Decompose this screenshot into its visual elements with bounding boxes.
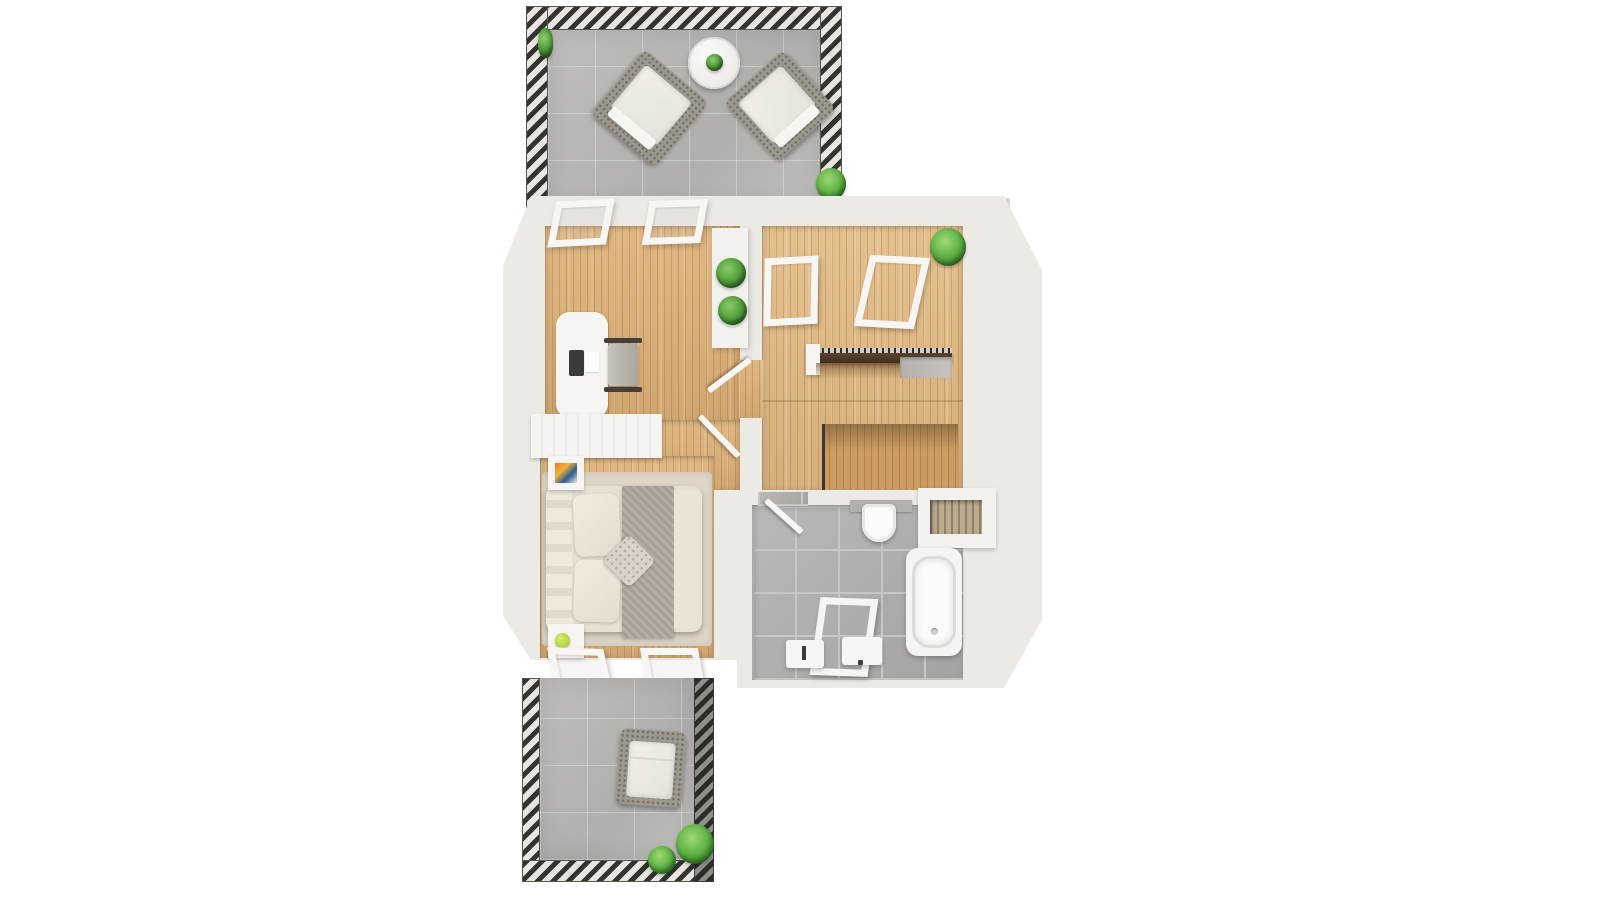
table-plant <box>706 54 723 71</box>
stair-landing <box>900 357 952 378</box>
sink-left-faucet <box>802 646 806 660</box>
office-chair <box>604 338 644 392</box>
wardrobe <box>531 414 662 458</box>
bathtub-drain <box>931 628 938 635</box>
floor-plan-render <box>0 0 1600 900</box>
desk-paper <box>585 352 599 372</box>
bottom-terrace-plant-small <box>648 846 676 874</box>
office-roof-window-left <box>547 199 615 248</box>
sink-right-faucet <box>858 660 863 665</box>
floor-step-seam <box>762 400 963 402</box>
bottom-terrace-railing-left <box>522 678 540 882</box>
top-terrace-edge-plant <box>816 168 846 200</box>
stairwell-edge <box>822 424 825 490</box>
headboard <box>546 486 572 632</box>
wall-niche-interior <box>930 500 982 534</box>
console-plant-upper <box>716 258 746 288</box>
stairwell-opening <box>822 424 958 490</box>
nightstand-lamp <box>555 633 570 648</box>
bottom-terrace-lounge-chair <box>615 728 686 808</box>
desk-tablet <box>569 350 584 376</box>
duvet <box>674 490 702 628</box>
console-shelf <box>712 228 748 348</box>
nightstand-art <box>553 461 579 485</box>
office-roof-window-right <box>642 199 708 245</box>
toilet <box>862 504 896 542</box>
top-terrace-corner-plant <box>538 28 553 58</box>
console-plant-lower <box>718 296 747 325</box>
bottom-terrace-railing-bottom <box>522 860 714 882</box>
stair-handrail-balusters <box>816 348 952 353</box>
bottom-terrace-plant-large <box>676 824 714 864</box>
stair-room-floor-window-left <box>763 256 818 327</box>
stair-room-corner-plant <box>930 228 966 266</box>
top-terrace-railing-top <box>526 6 842 30</box>
